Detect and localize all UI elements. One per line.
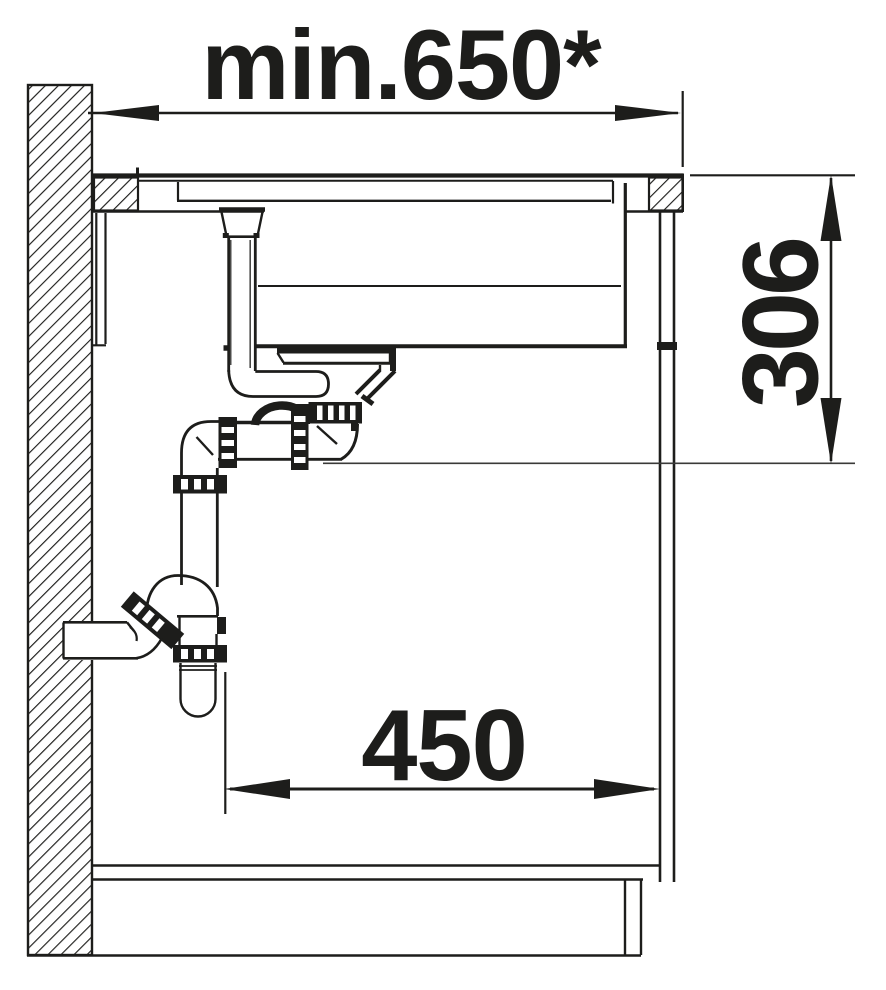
svg-text:min.650*: min.650* [201, 9, 602, 120]
svg-text:306: 306 [720, 239, 841, 408]
svg-text:450: 450 [361, 690, 527, 802]
